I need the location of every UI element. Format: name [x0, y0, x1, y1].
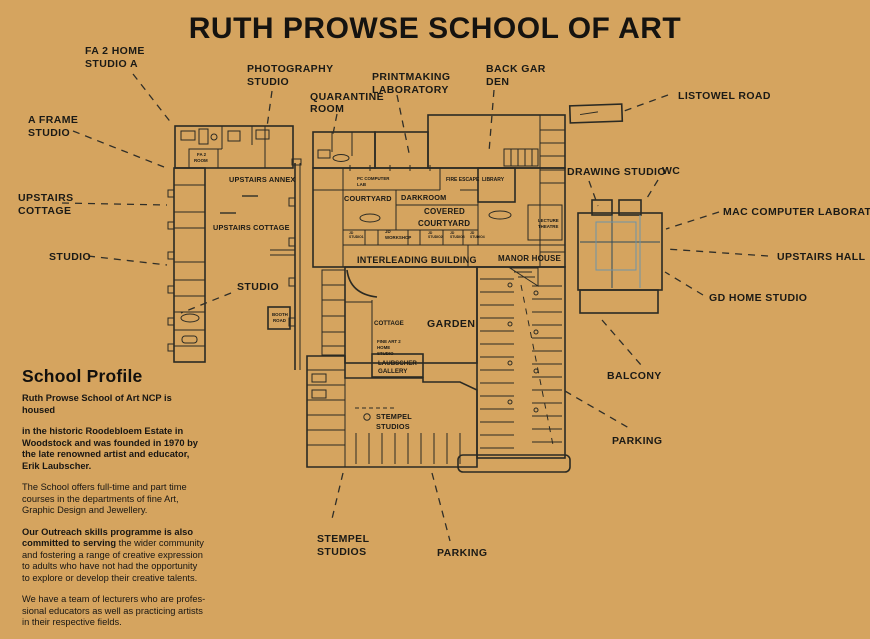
garden-and-cottage	[322, 267, 477, 363]
parking-area-east	[458, 267, 570, 472]
label-drawing-studio: DRAWING STUDIO	[567, 166, 666, 178]
room-jd2-line2: STUDIO2	[428, 235, 443, 239]
school-profile-para1: Ruth Prowse School of Art NCP is housed	[22, 393, 206, 416]
room-darkroom: DARKROOM	[401, 193, 446, 202]
label-fa2-home-line2: STUDIO A	[85, 58, 138, 70]
school-profile-para3: The School offers full-time and part tim…	[22, 482, 206, 517]
building-left-arm	[168, 168, 205, 362]
room-lecture-line2: THEATRE	[538, 224, 558, 229]
room-garden: GARDEN	[427, 318, 476, 330]
area-tick-marks	[220, 196, 258, 213]
label-parking-south: PARKING	[437, 547, 487, 559]
label-gd-home-studio: GD HOME STUDIO	[709, 292, 807, 304]
room-fine-art-line1: FINE ART 2	[377, 339, 401, 344]
school-profile-heading: School Profile	[22, 366, 206, 387]
room-jd4-line2: STUDIO4	[470, 235, 485, 239]
label-a-frame-line1: A FRAME	[28, 114, 78, 126]
room-jd-workshop-line2: WORKSHOP	[385, 235, 411, 240]
school-profile-para4: Our Outreach skills programme is also co…	[22, 527, 206, 585]
room-lecture-line1: LECTURE	[538, 218, 559, 223]
label-printmaking-line1: PRINTMAKING	[372, 71, 450, 83]
room-booth-line1: BOOTH	[272, 312, 288, 317]
label-wc: WC	[662, 165, 680, 177]
label-printmaking-line2: LABORATORY	[372, 84, 449, 96]
room-upstairs-annex: UPSTAIRS ANNEX	[229, 175, 295, 184]
room-laubscher-line2: GALLERY	[378, 368, 408, 375]
room-jd-workshop-line1: JD	[385, 229, 391, 234]
school-profile: School Profile Ruth Prowse School of Art…	[22, 366, 206, 639]
building-gd-home-studio	[578, 200, 662, 313]
label-photography-line1: PHOTOGRAPHY	[247, 63, 333, 75]
room-laubscher-line1: LAUBSCHER	[378, 360, 417, 367]
room-covered-line2: COURTYARD	[418, 219, 470, 228]
parking-bay-lines-left	[480, 279, 514, 448]
label-photography-line2: STUDIO	[247, 76, 289, 88]
label-back-garden-line2: DEN	[486, 76, 509, 88]
campus-map-poster: RUTH PROWSE SCHOOL OF ART	[0, 0, 870, 620]
room-cottage: COTTAGE	[374, 320, 404, 327]
room-library: LIBRARY	[482, 177, 505, 183]
label-studio-west: STUDIO	[49, 251, 91, 263]
label-stempel-line2: STUDIOS	[317, 546, 366, 558]
school-profile-para2: in the historic Roodebloem Estate in Woo…	[22, 426, 206, 472]
label-quarantine-line2: ROOM	[310, 103, 344, 115]
parking-bay-lines-right	[532, 286, 562, 442]
label-back-garden-line1: BACK GAR	[486, 63, 546, 75]
room-manor-house: MANOR HOUSE	[498, 254, 562, 263]
room-jd3-line2: STUDIO3	[450, 235, 465, 239]
label-stempel-line1: STEMPEL	[317, 533, 370, 545]
room-fine-art-line3: STUDIO	[377, 351, 394, 356]
room-fa2-line1: FA 2	[197, 152, 207, 157]
room-stempel-line1: STEMPEL	[376, 412, 412, 421]
room-booth-line2: ROAD	[273, 318, 286, 323]
room-fine-art-line2: HOME	[377, 345, 390, 350]
label-parking-east: PARKING	[612, 435, 662, 447]
label-upstairs-cottage-west-line1: UPSTAIRS	[18, 192, 74, 204]
label-mac-computer-laboratory: MAC COMPUTER LABORATORY	[723, 206, 870, 218]
room-covered-line1: COVERED	[424, 207, 465, 216]
room-upstairs-cottage: UPSTAIRS COTTAGE	[213, 223, 290, 232]
room-interleading-building: INTERLEADING BUILDING	[357, 255, 477, 265]
room-courtyard: COURTYARD	[344, 194, 392, 203]
room-pc-lab-line2: LAB	[357, 182, 366, 187]
label-studio-mid: STUDIO	[237, 281, 279, 293]
label-a-frame-line2: STUDIO	[28, 127, 70, 139]
label-fa2-home-line1: FA 2 HOME	[85, 45, 145, 57]
label-listowel-road: LISTOWEL ROAD	[678, 90, 771, 102]
room-fire-escape: FIRE ESCAPE	[446, 177, 480, 183]
label-balcony: BALCONY	[607, 370, 662, 382]
building-photography-block	[175, 126, 293, 168]
room-fa2-line2: ROOM	[194, 158, 208, 163]
building-main-complex	[313, 115, 565, 267]
room-jd1-line2: STUDIO1	[349, 235, 364, 239]
corridor-booth-road	[268, 159, 301, 370]
school-profile-para5: We have a team of lecturers who are prof…	[22, 594, 206, 629]
label-upstairs-cottage-west-line2: COTTAGE	[18, 205, 71, 217]
listowel-road-marker	[570, 104, 623, 123]
label-upstairs-hall: UPSTAIRS HALL	[777, 251, 866, 263]
room-pc-lab-line1: PC COMPUTER	[357, 176, 390, 181]
room-stempel-line2: STUDIOS	[376, 422, 410, 431]
